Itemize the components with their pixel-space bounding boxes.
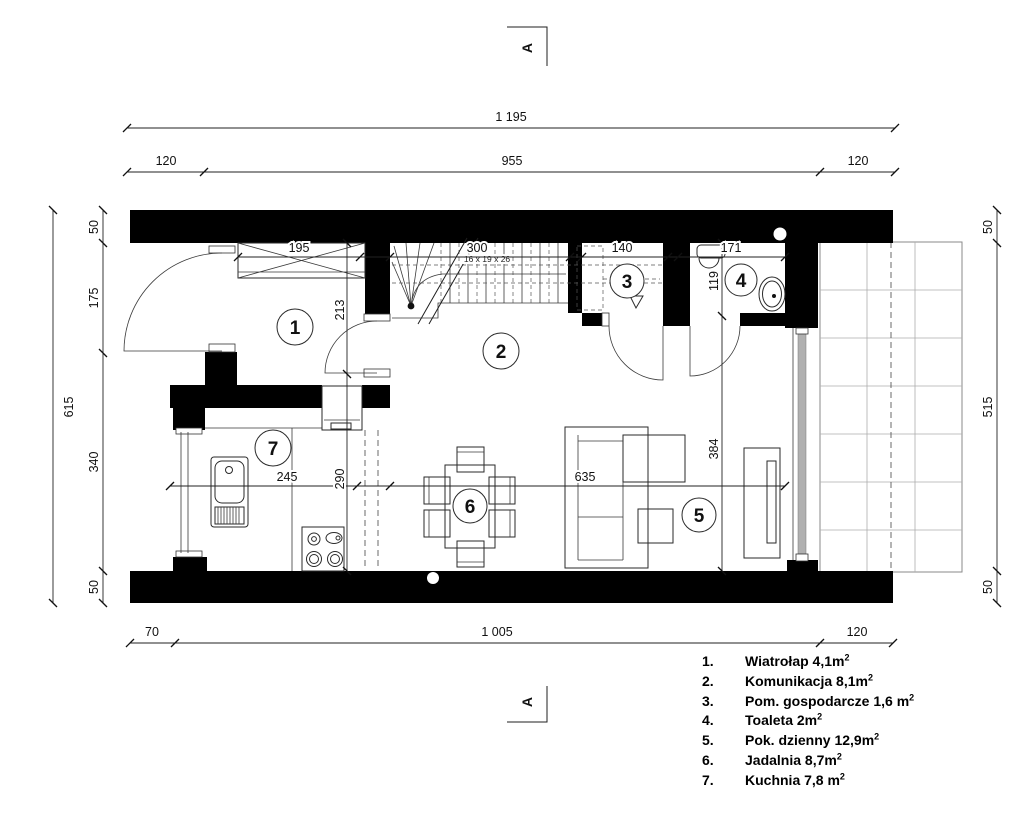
label-top-middle: 955	[502, 154, 523, 168]
label-bottom-middle: 1 005	[481, 625, 512, 639]
room-marker-3: 3	[610, 264, 644, 298]
label-bottom-right: 120	[847, 625, 868, 639]
room-marker-4: 4	[725, 264, 757, 296]
room-number-7: 7	[268, 439, 279, 460]
section-marker-top: A	[507, 27, 547, 66]
label-toilet-w: 171	[721, 241, 742, 255]
vestibule-right-wall	[365, 243, 390, 317]
legend-item-7: 7.Kuchnia 7,8 m2	[702, 771, 914, 791]
legend-item-1: 1.Wiatrołap 4,1m2	[702, 652, 914, 672]
legend-item-6: 6.Jadalnia 8,7m2	[702, 751, 914, 771]
label-living-w: 635	[575, 470, 596, 484]
room-marker-6: 6	[453, 489, 487, 523]
storage-toilet-wall	[663, 243, 690, 326]
legend-item-5: 5.Pok. dzienny 12,9m2	[702, 731, 914, 751]
label-left-s3: 340	[87, 452, 101, 473]
toilet	[759, 277, 785, 311]
vestibule-left-wall	[205, 352, 237, 385]
label-living-h: 384	[707, 439, 721, 460]
room-number-1: 1	[290, 318, 301, 339]
terrace	[820, 242, 962, 572]
coffee-table	[638, 509, 673, 543]
right-wall-column	[785, 243, 818, 328]
label-storage-w: 140	[612, 241, 633, 255]
label-vestibule-h: 213	[333, 300, 347, 321]
vestibule-kitchen-wall-a	[170, 385, 322, 408]
bottom-wall-step	[787, 560, 818, 571]
vestibule-hall-door	[325, 314, 390, 377]
kitchen-window	[176, 428, 202, 557]
label-stairs-w: 300	[467, 241, 488, 255]
room-legend: 1.Wiatrołap 4,1m2 2.Komunikacja 8,1m2 3.…	[702, 652, 914, 791]
storage-symbol	[630, 296, 643, 308]
toilet-bottom-pier	[740, 313, 785, 326]
kitchen-left-wall-lower	[173, 557, 207, 571]
wall-dot-top	[774, 228, 787, 241]
label-top-left: 120	[156, 154, 177, 168]
room-marker-7: 7	[255, 430, 291, 466]
stair-newel-dot	[408, 303, 415, 310]
label-kitchen-w: 245	[277, 470, 298, 484]
label-kitchen-h: 290	[333, 469, 347, 490]
storage-door	[602, 313, 663, 380]
label-wardrobe-w: 195	[289, 241, 310, 255]
sofa	[565, 427, 685, 568]
walls	[130, 210, 893, 603]
label-left-total: 615	[62, 397, 76, 418]
room-number-5: 5	[694, 506, 705, 527]
room-number-4: 4	[736, 271, 747, 292]
room-marker-2: 2	[483, 333, 519, 369]
wall-dot-bottom	[427, 572, 439, 584]
toilet-door	[690, 326, 740, 376]
room-marker-1: 1	[277, 309, 313, 345]
label-toilet-h: 119	[707, 271, 721, 291]
stairs-storage-wall	[568, 243, 582, 313]
kitchen-sink	[211, 457, 248, 527]
legend-item-3: 3.Pom. gospodarcze 1,6 m2	[702, 692, 914, 712]
label-left-s4: 50	[87, 580, 101, 594]
section-letter-top: A	[519, 43, 535, 53]
label-left-s1: 50	[87, 220, 101, 234]
bottom-wall	[130, 571, 893, 603]
kitchen-boundary-dashed	[365, 430, 378, 569]
tv-cabinet	[744, 448, 780, 558]
room-number-2: 2	[496, 342, 507, 363]
section-letter-bottom: A	[519, 697, 535, 707]
label-top-right: 120	[848, 154, 869, 168]
entrance-door	[124, 246, 235, 352]
room-number-6: 6	[465, 497, 476, 518]
legend-item-2: 2.Komunikacja 8,1m2	[702, 672, 914, 692]
vestibule-kitchen-wall-b	[362, 385, 390, 408]
label-right-s3: 50	[981, 580, 995, 594]
section-marker-bottom: A	[507, 686, 547, 722]
stairs-note: 16 x 19 x 26	[464, 254, 511, 264]
label-right-s1: 50	[981, 220, 995, 234]
stove	[302, 527, 344, 571]
legend-item-4: 4.Toaleta 2m2	[702, 711, 914, 731]
label-right-s2: 515	[981, 397, 995, 418]
label-bottom-left: 70	[145, 625, 159, 639]
room-marker-5: 5	[682, 498, 716, 532]
label-total-width: 1 195	[495, 110, 526, 124]
room-number-3: 3	[622, 272, 633, 293]
storage-bottom-pier	[582, 313, 602, 326]
floor-plan-page: A A	[0, 0, 1024, 819]
sliding-glass-door	[793, 328, 808, 561]
kitchen-left-wall-upper	[173, 408, 205, 430]
label-left-s2: 175	[87, 288, 101, 309]
kitchen-tall-unit	[322, 386, 362, 430]
